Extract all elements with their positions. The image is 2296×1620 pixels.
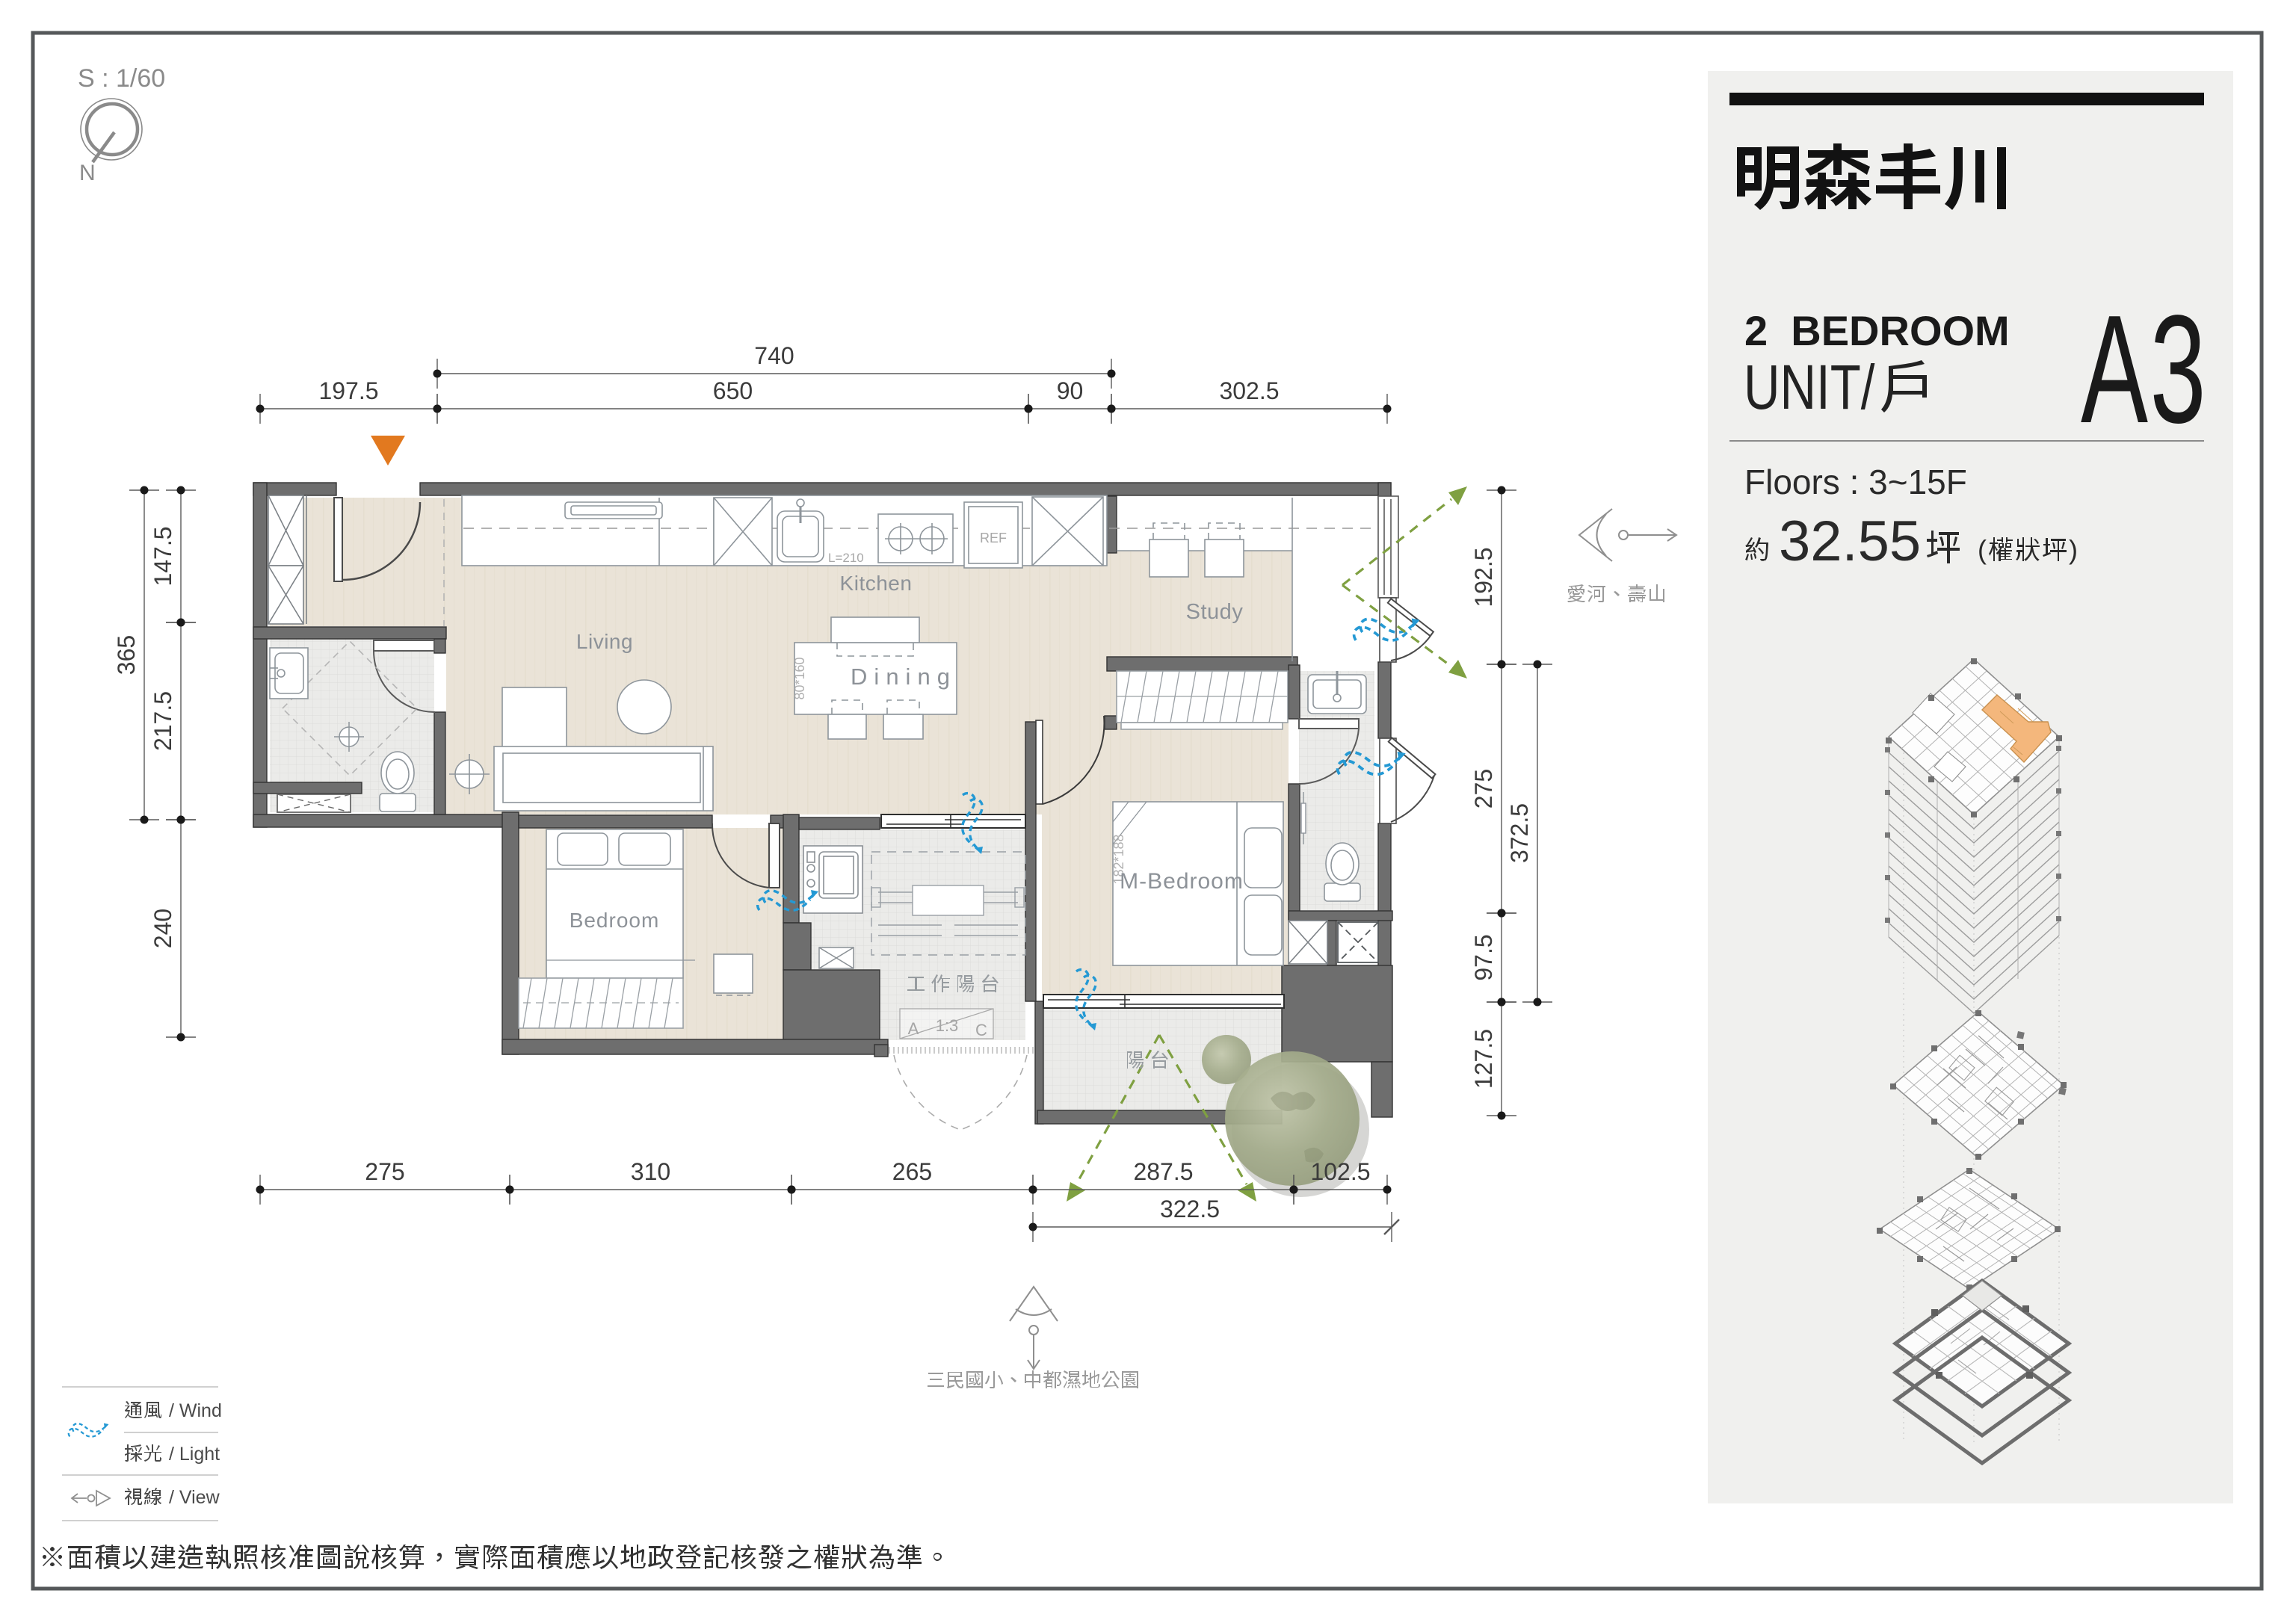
svg-text:372.5: 372.5 [1506, 803, 1533, 863]
svg-text:147.5: 147.5 [149, 526, 176, 586]
svg-text:N: N [79, 161, 96, 185]
svg-text:S : 1/60: S : 1/60 [78, 64, 165, 93]
svg-text:102.5: 102.5 [1310, 1158, 1370, 1185]
svg-text:A: A [908, 1019, 919, 1038]
svg-text:/ View: / View [169, 1487, 220, 1508]
svg-text:287.5: 287.5 [1133, 1158, 1193, 1185]
svg-text:650: 650 [713, 377, 753, 404]
svg-text:C: C [975, 1021, 987, 1039]
svg-text:80*160: 80*160 [792, 657, 807, 699]
svg-text:365: 365 [113, 635, 140, 675]
svg-text:32.55: 32.55 [1779, 510, 1921, 573]
svg-text:275: 275 [1470, 769, 1497, 809]
svg-text:90: 90 [1057, 377, 1084, 404]
svg-text:): ) [2069, 534, 2078, 565]
svg-text:REF: REF [980, 531, 1007, 545]
svg-text:275: 275 [365, 1158, 404, 1185]
svg-text:302.5: 302.5 [1219, 377, 1279, 404]
svg-text:Kitchen: Kitchen [840, 572, 913, 595]
svg-text:Study: Study [1186, 600, 1244, 624]
svg-text:217.5: 217.5 [149, 691, 176, 751]
svg-text:197.5: 197.5 [318, 377, 378, 404]
svg-text:740: 740 [754, 342, 794, 369]
svg-text:240: 240 [149, 909, 176, 948]
svg-text:L=210: L=210 [828, 551, 864, 565]
svg-text:2 BEDROOM: 2 BEDROOM [1744, 307, 2010, 354]
svg-text:Floors : 3~15F: Floors : 3~15F [1744, 463, 1967, 501]
svg-text:Dining: Dining [851, 664, 957, 690]
svg-text:UNIT/: UNIT/ [1744, 353, 1875, 423]
svg-text:M-Bedroom: M-Bedroom [1120, 869, 1244, 894]
svg-text:322.5: 322.5 [1160, 1196, 1220, 1222]
svg-text:192.5: 192.5 [1470, 547, 1497, 607]
svg-text:A3: A3 [2081, 282, 2208, 455]
svg-text:310: 310 [631, 1158, 670, 1185]
svg-text:265: 265 [892, 1158, 932, 1185]
svg-text:/ Wind: / Wind [169, 1400, 222, 1421]
svg-text:127.5: 127.5 [1470, 1029, 1497, 1089]
svg-text:97.5: 97.5 [1470, 934, 1497, 980]
svg-text:Bedroom: Bedroom [570, 909, 660, 932]
svg-text:1:3: 1:3 [936, 1016, 959, 1035]
svg-text:Living: Living [576, 630, 633, 653]
svg-text:(: ( [1978, 534, 1987, 565]
svg-text:/ Light: / Light [169, 1444, 220, 1465]
